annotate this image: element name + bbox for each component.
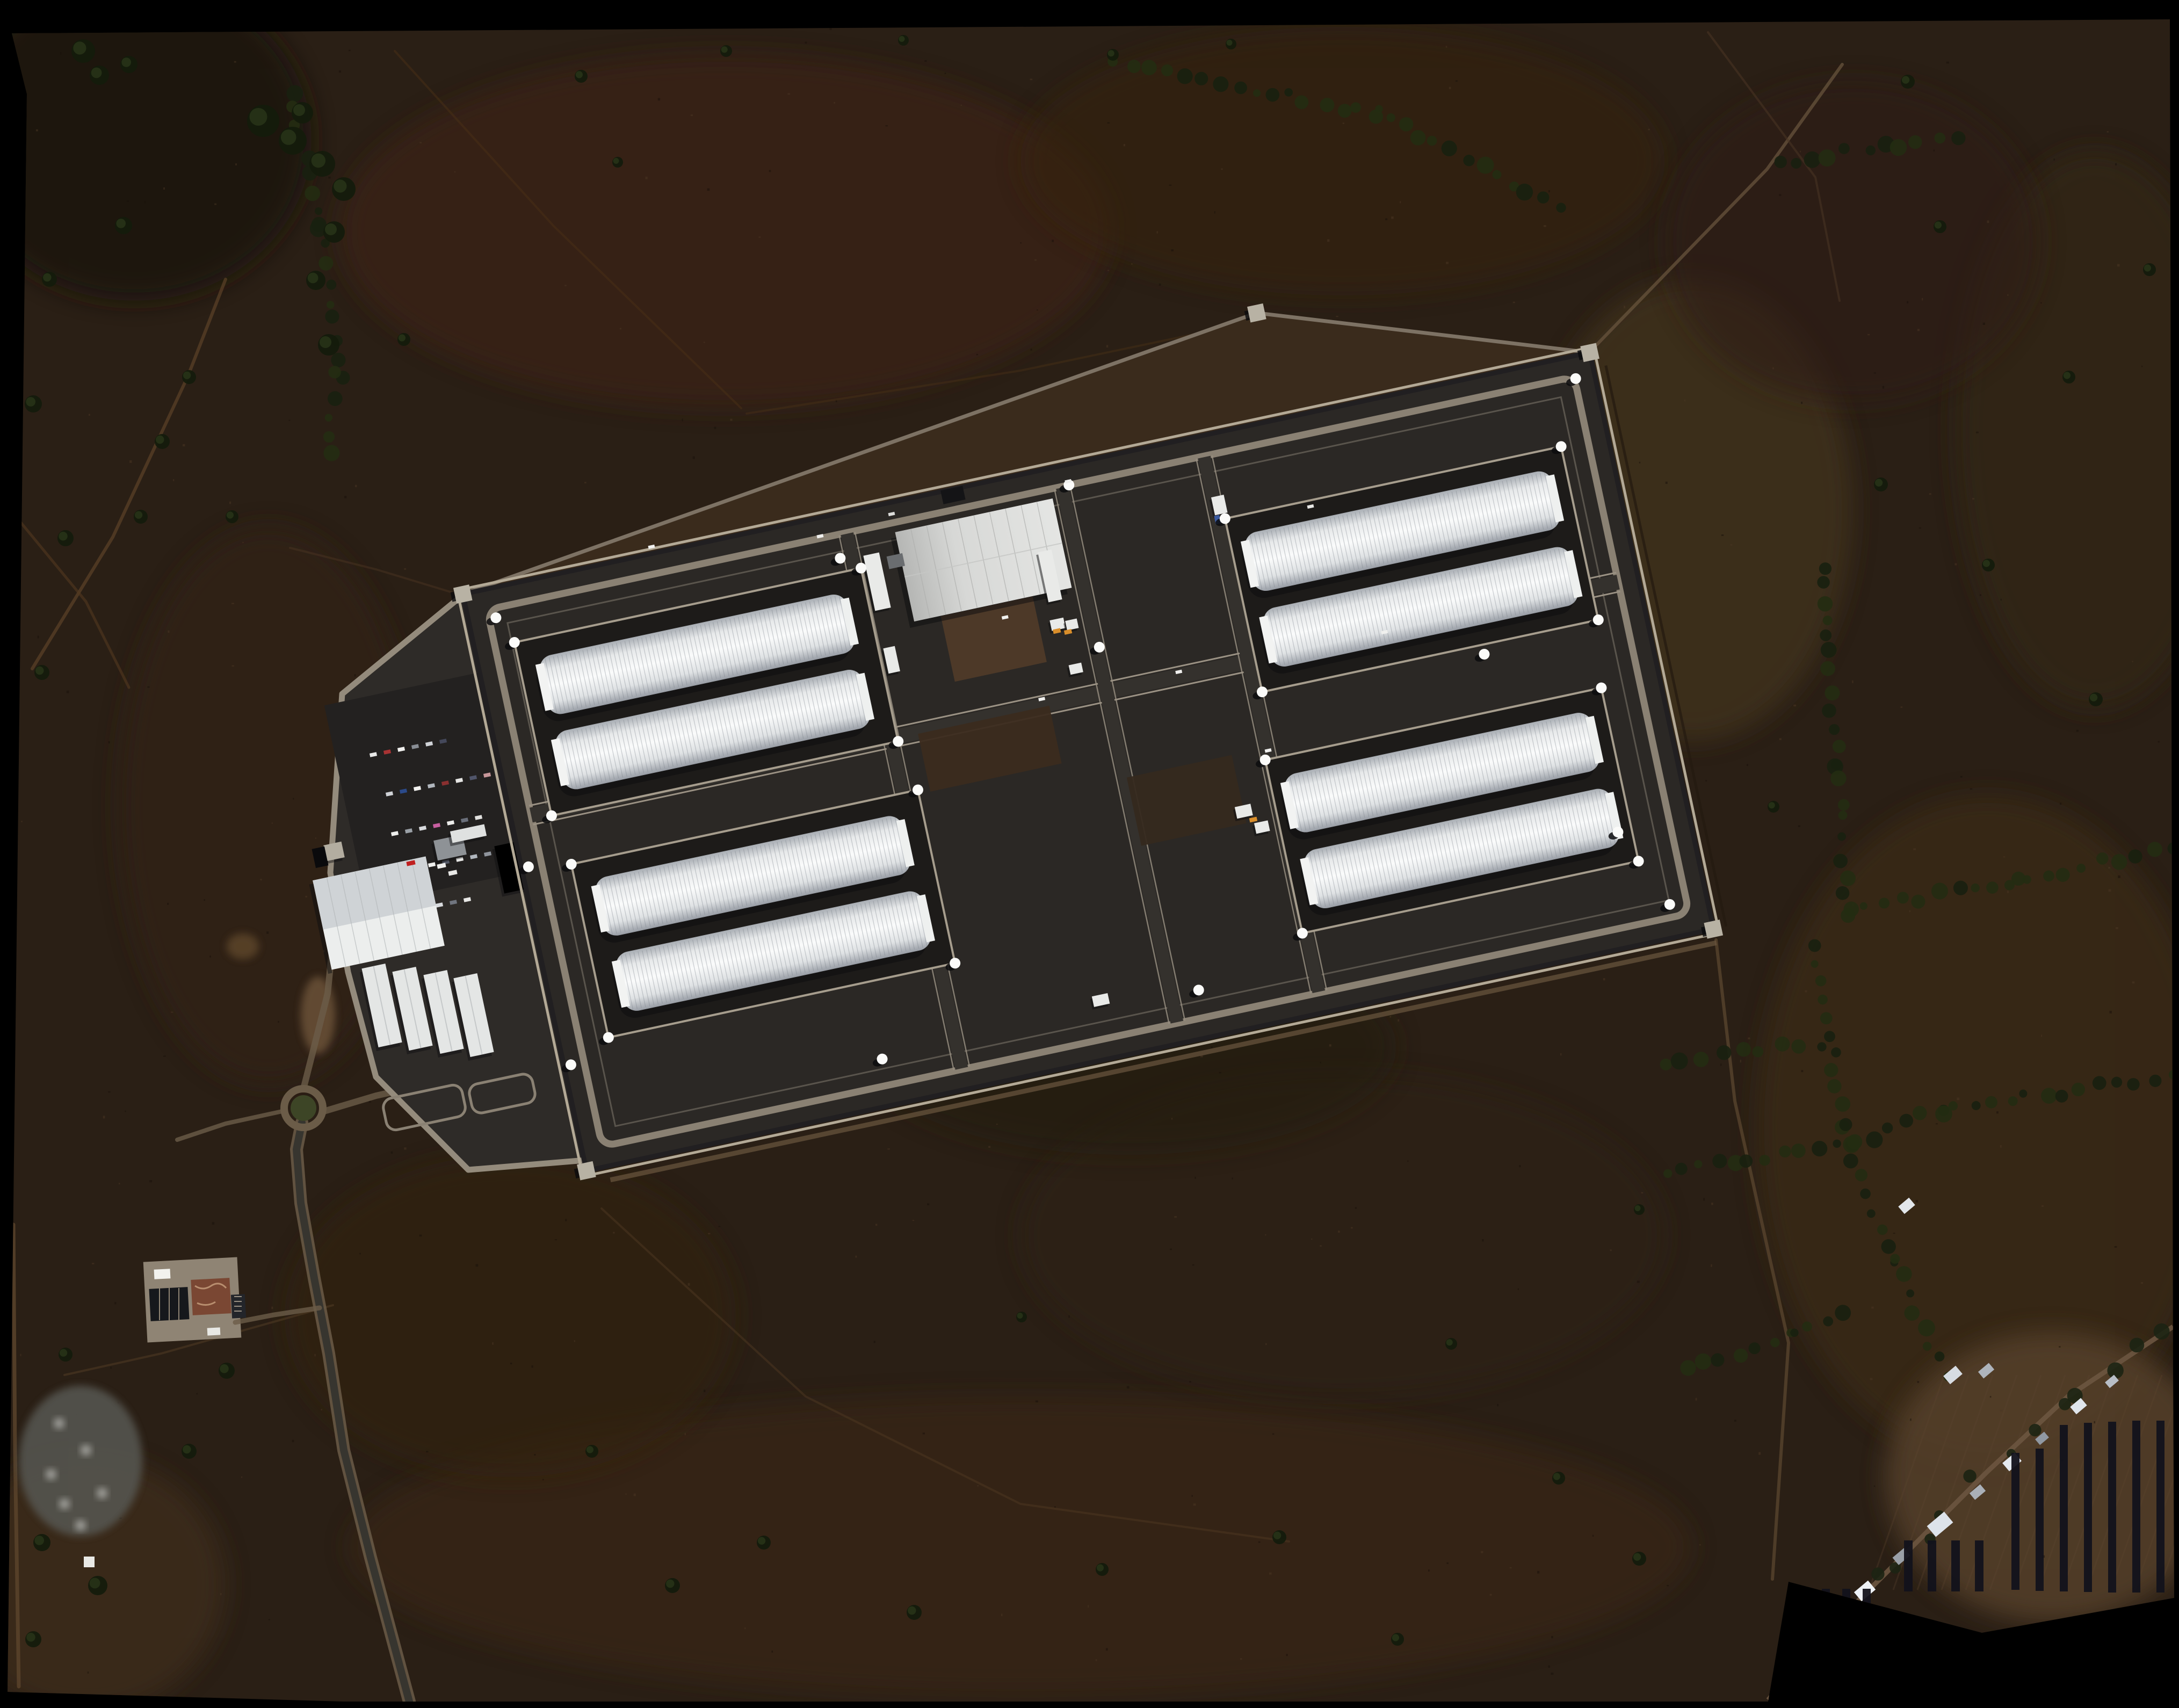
tree: [2143, 263, 2156, 276]
tree: [907, 1605, 922, 1620]
terrain-patch: [1020, 27, 1665, 295]
small-white-building: [84, 1557, 95, 1567]
water-treatment-plant: [143, 1257, 246, 1343]
tree: [182, 1444, 197, 1459]
tree: [1272, 1530, 1286, 1544]
tree: [332, 177, 356, 201]
corner-structure: [1704, 920, 1723, 939]
roadside-tree: [1871, 1567, 1884, 1580]
tree: [1632, 1552, 1646, 1566]
roadside-tree: [2107, 1362, 2123, 1378]
tree: [1016, 1312, 1027, 1322]
roadside-tree: [2154, 1323, 2170, 1340]
tree: [318, 334, 339, 356]
terrain-patch: [1665, 81, 2041, 403]
tree: [1768, 801, 1779, 813]
tree: [71, 39, 95, 63]
ash-spot: [81, 1445, 91, 1455]
roadside-tree: [1963, 1470, 1976, 1482]
ash-patch: [19, 1386, 142, 1536]
tree: [1934, 220, 1946, 233]
rocky-patch: [227, 933, 259, 959]
tree: [612, 157, 623, 168]
tree: [1982, 559, 1995, 571]
plant-building: [154, 1269, 171, 1279]
tree: [2062, 371, 2075, 383]
solar-panel-row: [1904, 1540, 1913, 1591]
tree: [397, 333, 410, 346]
solar-panel-row: [2132, 1421, 2140, 1593]
tree: [323, 221, 345, 243]
tree: [1874, 477, 1888, 491]
corner-structure: [1580, 343, 1599, 362]
tree: [88, 1576, 107, 1595]
solar-panel-row: [1951, 1540, 1960, 1591]
tree: [1107, 49, 1119, 61]
tree: [25, 1631, 41, 1647]
ash-spot: [76, 1521, 85, 1530]
plant-shed: [207, 1327, 221, 1335]
corner-structure: [453, 584, 473, 604]
tree: [306, 271, 325, 290]
tree: [90, 66, 109, 85]
tree: [279, 127, 307, 155]
roundabout-island: [291, 1095, 316, 1121]
solar-panel-row: [2108, 1422, 2116, 1593]
terrain-patch: [338, 54, 1112, 408]
corner-structure: [577, 1161, 596, 1181]
plant-red-tank: [191, 1278, 231, 1315]
ash-spot: [97, 1488, 107, 1498]
tree: [59, 1348, 73, 1362]
tree: [1552, 1472, 1565, 1485]
tree: [585, 1445, 598, 1458]
tree: [25, 395, 42, 412]
tree: [155, 434, 170, 449]
terrain: [0, 0, 2179, 1708]
terrain-patch: [285, 1155, 736, 1477]
tree: [115, 217, 132, 234]
solar-panel-row: [2060, 1425, 2068, 1591]
solar-panel-row: [1975, 1540, 1983, 1591]
ash-spot: [54, 1418, 64, 1428]
tree: [1096, 1563, 1109, 1576]
tree: [120, 56, 137, 73]
tree: [575, 70, 588, 83]
tree: [1226, 39, 1236, 49]
solar-panel-row: [2011, 1453, 2019, 1590]
tree: [57, 530, 74, 546]
roadside-tree: [2130, 1338, 2144, 1352]
satellite-image-cecot-prison: [0, 0, 2179, 1708]
solar-panel-row: [2084, 1423, 2092, 1592]
tree: [292, 102, 313, 124]
tree: [34, 665, 49, 680]
ash-spot: [46, 1470, 56, 1479]
tree: [757, 1536, 771, 1550]
tree: [134, 510, 148, 524]
tree: [898, 35, 909, 46]
tree: [2089, 692, 2103, 706]
tree: [720, 45, 732, 57]
roadside-tree: [2029, 1424, 2041, 1436]
solar-panel-row: [2036, 1449, 2044, 1591]
tree: [1901, 75, 1915, 89]
tree: [665, 1578, 680, 1593]
tree: [309, 151, 335, 177]
tree: [226, 510, 238, 523]
tree: [219, 1363, 235, 1379]
tree: [1391, 1633, 1404, 1646]
ash-spot: [60, 1499, 69, 1509]
tree: [42, 272, 57, 287]
tree: [1445, 1338, 1457, 1350]
solar-panel-row: [1928, 1540, 1936, 1591]
tree: [1634, 1204, 1645, 1215]
solar-panel-row: [2156, 1421, 2164, 1593]
tree: [247, 105, 279, 137]
tree: [182, 370, 196, 384]
tree: [33, 1534, 50, 1551]
corner-structure: [1247, 303, 1266, 323]
